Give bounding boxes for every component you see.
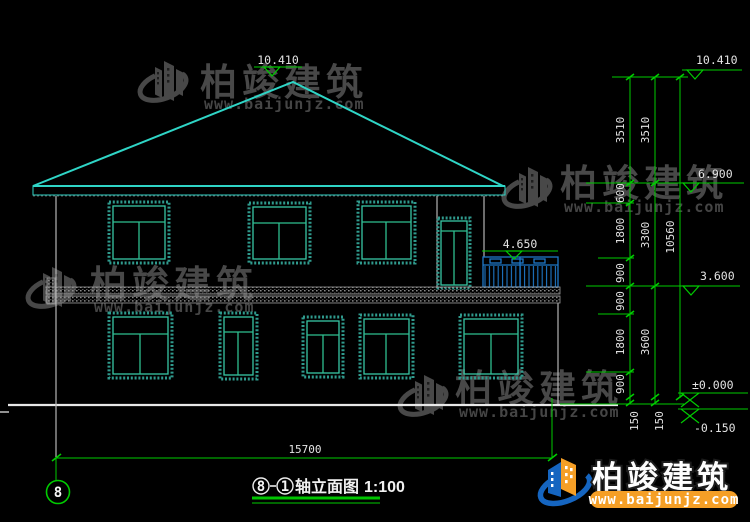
dim-label: 150 [653, 411, 666, 431]
dim-total-width: 15700 [288, 443, 321, 456]
elevation-value: 10.410 [696, 53, 738, 67]
window [358, 202, 415, 263]
watermark-top: 柏竣建筑 www.baijunjz.com [136, 61, 368, 113]
dim-label: 3510 [614, 117, 627, 144]
elevation-value: ±0.000 [692, 378, 734, 392]
dim-label: 1800 [614, 329, 627, 356]
window [109, 202, 169, 263]
cad-canvas: 柏竣建筑 www.baijunjz.com 柏竣建筑 www.baijunjz.… [0, 0, 750, 522]
title-axis-b: 1 [281, 479, 289, 495]
window [109, 313, 172, 378]
title-scale: 1:100 [364, 479, 405, 496]
elevation-value: 4.650 [503, 237, 538, 251]
dim-label: 900 [614, 263, 627, 283]
elevation-value: 3.600 [700, 269, 735, 283]
logo-building-blue [548, 462, 561, 497]
elevation-value: 6.900 [698, 167, 733, 181]
dim-label: 150 [628, 411, 641, 431]
elevation-marker-outdoor: -0.150 [678, 409, 748, 435]
elevation-value: 10.410 [257, 53, 299, 67]
window [249, 203, 310, 263]
title-name: 轴立面图 [295, 477, 359, 496]
title-axis-a: 8 [257, 479, 265, 495]
dim-label: 900 [614, 374, 627, 394]
dim-label: 3600 [639, 329, 652, 356]
watermark-site-text: www.baijunjz.com [564, 198, 725, 216]
dim-overall-height: 10560 [664, 220, 677, 253]
watermark-bottom: 柏竣建筑 www.baijunjz.com [396, 367, 623, 421]
watermark-site-text: www.baijunjz.com [204, 95, 365, 113]
axis-bubble-label: 8 [54, 485, 62, 501]
brand-logo: 柏竣建筑 www.baijunjz.com [536, 458, 739, 510]
elevation-value: -0.150 [694, 421, 736, 435]
eave-fascia [33, 186, 505, 195]
window [360, 315, 413, 378]
window [220, 313, 257, 379]
brand-logo-text: 柏竣建筑 [592, 460, 732, 495]
dim-label: 1800 [614, 218, 627, 245]
dim-label: 3300 [639, 222, 652, 249]
elevation-drawing: 柏竣建筑 www.baijunjz.com 柏竣建筑 www.baijunjz.… [0, 0, 750, 522]
window [303, 317, 343, 377]
elevation-marker-right-peak: 10.410 [682, 53, 742, 79]
elevation-marker-balcony: 4.650 [482, 237, 558, 259]
elevation-marker-ground: ±0.000 [678, 378, 748, 407]
elevation-marker-second-floor: 3.600 [683, 269, 735, 295]
drawing-title: 8 1 轴立面图 1:100 [252, 477, 405, 503]
balcony-railing [483, 257, 558, 287]
bottom-dimension: 15700 [52, 443, 557, 461]
balcony-door [438, 218, 470, 288]
logo-building-orange [561, 458, 576, 496]
dim-label: 900 [614, 291, 627, 311]
dim-label: 3510 [639, 117, 652, 144]
brand-logo-site: www.baijunjz.com [589, 492, 740, 508]
dim-label: 600 [614, 183, 627, 203]
axis-8: 8 [47, 196, 70, 504]
